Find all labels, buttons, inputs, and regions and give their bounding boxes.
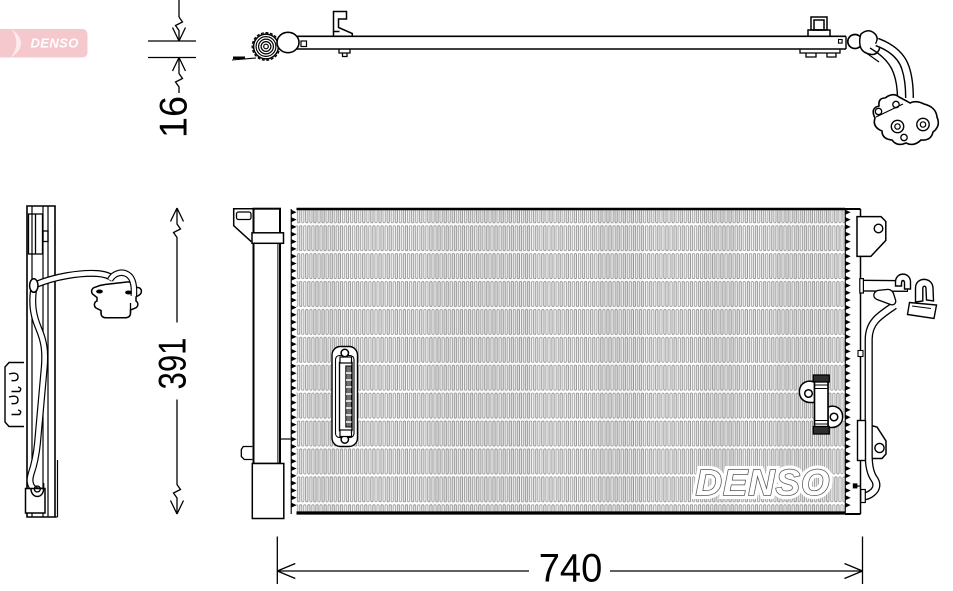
svg-text:DENSO: DENSO (696, 462, 831, 503)
svg-text:16: 16 (152, 96, 195, 138)
svg-text:391: 391 (152, 338, 195, 390)
svg-text:DENSO: DENSO (31, 36, 79, 51)
svg-text:740: 740 (539, 546, 603, 590)
